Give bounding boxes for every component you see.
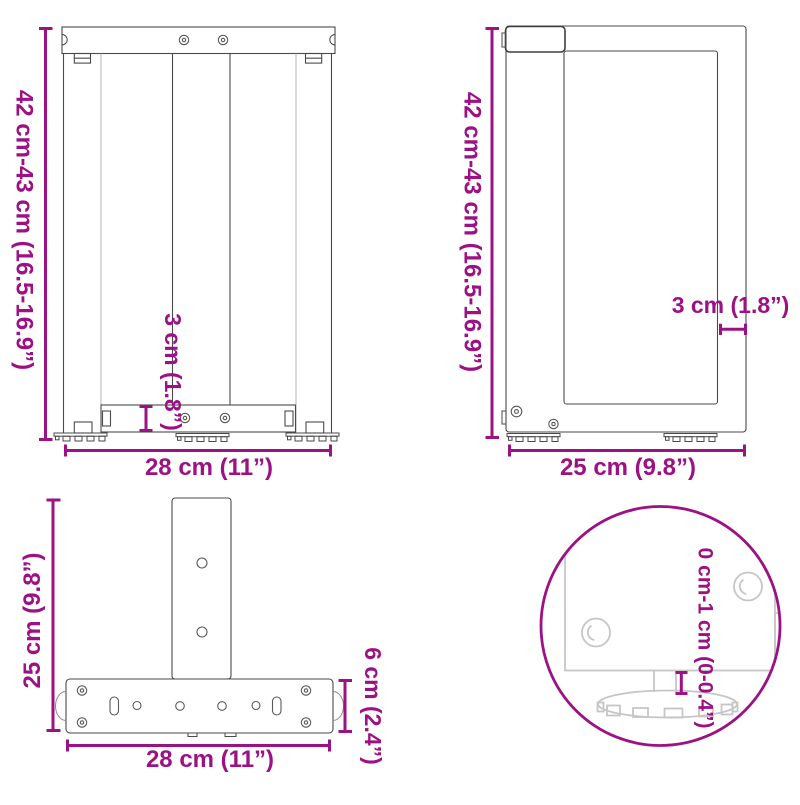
svg-text:0 cm-1 cm (0-0.4”): 0 cm-1 cm (0-0.4”) xyxy=(694,548,717,729)
svg-text:3 cm (1.8”): 3 cm (1.8”) xyxy=(160,313,186,431)
svg-text:28 cm (11”): 28 cm (11”) xyxy=(146,746,274,773)
svg-text:25 cm (9.8”): 25 cm (9.8”) xyxy=(560,454,696,481)
svg-text:42 cm-43 cm (16.5-16.9”): 42 cm-43 cm (16.5-16.9”) xyxy=(11,90,38,370)
svg-text:42 cm-43 cm (16.5-16.9”): 42 cm-43 cm (16.5-16.9”) xyxy=(459,92,486,372)
svg-text:25 cm (9.8”): 25 cm (9.8”) xyxy=(19,552,46,688)
svg-text:3 cm (1.8”): 3 cm (1.8”) xyxy=(672,292,790,318)
svg-text:6 cm (2.4”): 6 cm (2.4”) xyxy=(360,647,386,765)
svg-text:28 cm (11”): 28 cm (11”) xyxy=(145,454,273,481)
